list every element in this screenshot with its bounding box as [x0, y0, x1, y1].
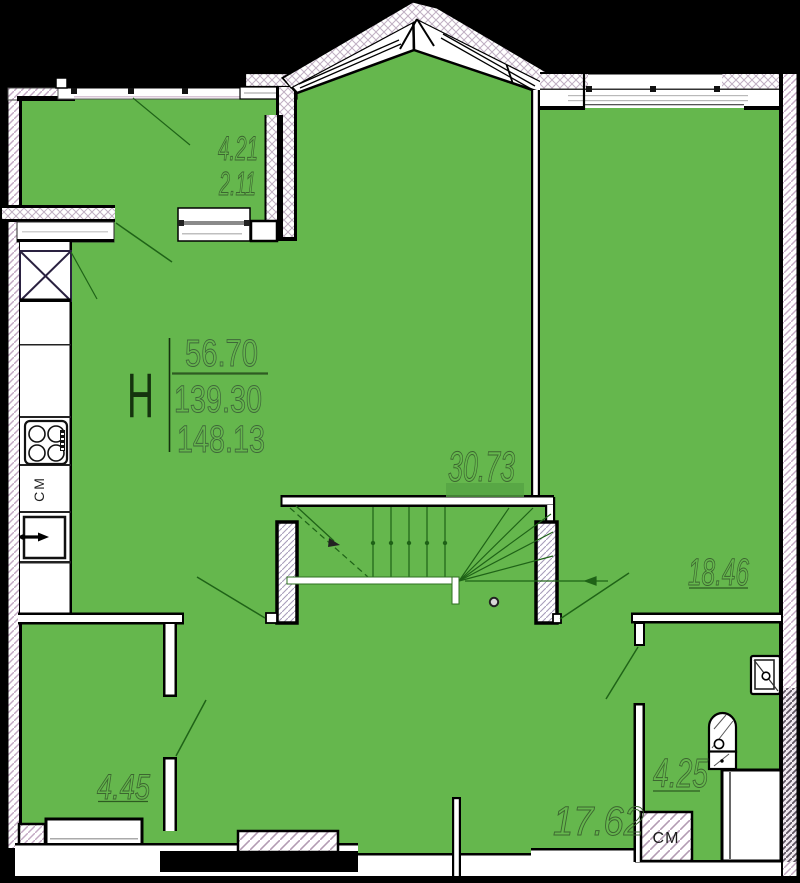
svg-text:17.62: 17.62 [553, 798, 644, 844]
svg-text:148.13: 148.13 [177, 419, 265, 461]
svg-text:139.30: 139.30 [174, 379, 262, 421]
svg-text:H: H [127, 361, 154, 431]
svg-text:4.25: 4.25 [653, 750, 708, 796]
svg-text:4.21: 4.21 [218, 130, 258, 168]
svg-text:2.11: 2.11 [218, 165, 256, 202]
svg-text:CM: CM [31, 476, 47, 502]
svg-text:CM: CM [653, 830, 680, 847]
svg-text:30.73: 30.73 [448, 443, 515, 491]
svg-text:56.70: 56.70 [185, 333, 258, 375]
